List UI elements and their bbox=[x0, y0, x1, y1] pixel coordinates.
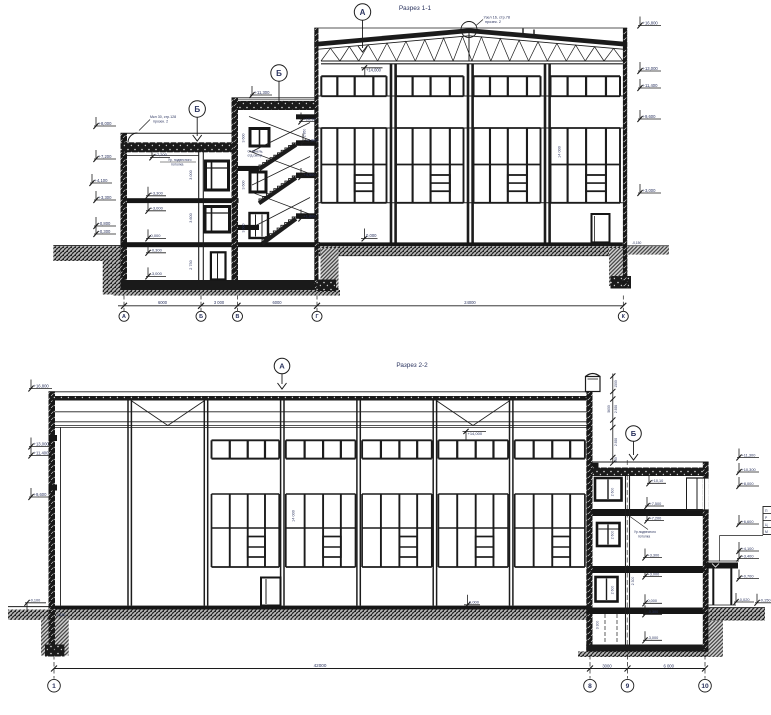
svg-text:+10,10: +10,10 bbox=[304, 116, 317, 121]
svg-text:0,000: 0,000 bbox=[648, 599, 658, 603]
svg-text:9: 9 bbox=[626, 683, 630, 690]
svg-text:+0,700: +0,700 bbox=[742, 573, 755, 578]
svg-text:0,000: 0,000 bbox=[151, 233, 162, 238]
svg-text:24000: 24000 bbox=[464, 300, 476, 305]
svg-text:потолка: потолка bbox=[171, 162, 184, 166]
svg-text:6 000: 6 000 bbox=[663, 663, 674, 668]
svg-text:6000: 6000 bbox=[158, 300, 168, 305]
svg-text:+8,000: +8,000 bbox=[742, 481, 755, 486]
svg-text:14 000: 14 000 bbox=[292, 510, 296, 522]
svg-text:8: 8 bbox=[588, 683, 592, 690]
svg-text:2 600: 2 600 bbox=[611, 586, 615, 595]
svg-text:В: В bbox=[236, 314, 240, 320]
svg-text:-0,300: -0,300 bbox=[648, 610, 659, 614]
svg-text:+4,100: +4,100 bbox=[95, 178, 109, 183]
svg-text:Б: Б bbox=[199, 314, 203, 320]
svg-text:А: А bbox=[122, 314, 126, 320]
svg-text:2 750: 2 750 bbox=[189, 260, 193, 270]
svg-text:-0,800: -0,800 bbox=[99, 221, 112, 226]
svg-text:2 300: 2 300 bbox=[631, 577, 635, 586]
svg-text:+9,600: +9,600 bbox=[643, 114, 657, 119]
svg-text:+16,800: +16,800 bbox=[34, 383, 50, 388]
svg-text:отд.смотр.: отд.смотр. bbox=[248, 154, 264, 158]
svg-text:+3,000: +3,000 bbox=[648, 572, 660, 576]
svg-text:+7,200: +7,200 bbox=[650, 516, 662, 520]
svg-text:-0,300: -0,300 bbox=[99, 229, 112, 234]
svg-text:А: А bbox=[360, 8, 366, 17]
svg-text:потолка: потолка bbox=[638, 534, 650, 538]
svg-text:42000: 42000 bbox=[314, 663, 327, 668]
svg-text:+6,600: +6,600 bbox=[742, 519, 755, 524]
svg-text:3 600: 3 600 bbox=[189, 213, 193, 223]
svg-text:-0,300: -0,300 bbox=[151, 248, 163, 253]
svg-text:+11,400: +11,400 bbox=[34, 450, 50, 455]
svg-text:-0,150: -0,150 bbox=[632, 241, 642, 245]
svg-text:Г: Г bbox=[315, 314, 318, 320]
svg-text:-0,150: -0,150 bbox=[760, 598, 771, 603]
svg-text:+10,300: +10,300 bbox=[742, 467, 757, 472]
svg-text:1500: 1500 bbox=[614, 380, 618, 388]
svg-text:-0,020: -0,020 bbox=[739, 597, 751, 602]
svg-text:+3,300: +3,300 bbox=[151, 191, 164, 196]
svg-text:3 600: 3 600 bbox=[242, 181, 246, 190]
svg-text:3 300: 3 300 bbox=[596, 621, 600, 630]
svg-text:+13,000: +13,000 bbox=[34, 441, 50, 446]
svg-text:+3,300: +3,300 bbox=[648, 553, 660, 557]
svg-text:+3,000: +3,000 bbox=[151, 206, 164, 211]
svg-text:Ур. подвесного: Ур. подвесного bbox=[168, 158, 192, 162]
svg-text:6000: 6000 bbox=[272, 300, 282, 305]
svg-text:Мкл 30, стр.128: Мкл 30, стр.128 bbox=[150, 115, 176, 119]
svg-text:2 850: 2 850 bbox=[614, 438, 618, 446]
svg-text:5600: 5600 bbox=[607, 405, 611, 413]
svg-text:+1,800: +1,800 bbox=[304, 213, 317, 218]
svg-text:+11,400: +11,400 bbox=[643, 83, 659, 88]
svg-text:+16,800: +16,800 bbox=[643, 20, 659, 25]
svg-text:Узел 16, стр.78: Узел 16, стр.78 bbox=[484, 16, 511, 20]
svg-text:2 850: 2 850 bbox=[303, 129, 307, 138]
svg-text:+7,200: +7,200 bbox=[155, 152, 168, 157]
svg-text:+4,900: +4,900 bbox=[304, 172, 317, 177]
svg-text:3 000: 3 000 bbox=[189, 170, 193, 180]
svg-text:2 850: 2 850 bbox=[614, 405, 618, 413]
svg-text:-0,100: -0,100 bbox=[30, 599, 41, 603]
svg-text:-0,150: -0,150 bbox=[56, 613, 66, 617]
svg-text:Б: Б bbox=[194, 105, 200, 114]
svg-text:1: 1 bbox=[52, 683, 56, 690]
svg-text:0,000: 0,000 bbox=[366, 233, 377, 238]
svg-text:+7,500: +7,500 bbox=[650, 502, 662, 506]
svg-text:+10,10: +10,10 bbox=[652, 479, 664, 483]
svg-text:+11,300: +11,300 bbox=[742, 452, 757, 457]
svg-text:+14,000: +14,000 bbox=[366, 68, 382, 73]
svg-text:3 000: 3 000 bbox=[214, 300, 225, 305]
svg-text:+7,800: +7,800 bbox=[306, 137, 319, 142]
svg-text:+3,400: +3,400 bbox=[742, 553, 755, 558]
svg-text:+3,300: +3,300 bbox=[99, 195, 113, 200]
svg-text:прозек. 2: прозек. 2 bbox=[485, 20, 501, 24]
svg-text:14 000: 14 000 bbox=[558, 146, 562, 158]
svg-text:Б: Б bbox=[631, 429, 637, 438]
svg-text:10: 10 bbox=[701, 683, 709, 690]
svg-text:А: А bbox=[279, 362, 285, 371]
svg-text:3 600: 3 600 bbox=[242, 134, 246, 143]
svg-text:Б: Б bbox=[276, 69, 282, 78]
svg-text:прозек. 2: прозек. 2 bbox=[153, 120, 168, 124]
svg-text:2 600: 2 600 bbox=[611, 531, 615, 540]
svg-text:М: М bbox=[765, 530, 768, 534]
svg-text:+9,600: +9,600 bbox=[34, 492, 48, 497]
svg-text:+7,200: +7,200 bbox=[99, 154, 113, 159]
svg-text:+8,000: +8,000 bbox=[99, 121, 113, 126]
svg-text:+4,100: +4,100 bbox=[742, 546, 755, 551]
svg-text:3 600: 3 600 bbox=[242, 224, 246, 233]
svg-text:Разрез 2-2: Разрез 2-2 bbox=[396, 362, 428, 369]
svg-text:-3,000: -3,000 bbox=[151, 271, 163, 276]
svg-text:+11,300: +11,300 bbox=[255, 90, 271, 95]
svg-text:+14,000: +14,000 bbox=[468, 431, 483, 436]
svg-text:2 600: 2 600 bbox=[611, 488, 615, 497]
svg-text:+3,000: +3,000 bbox=[643, 188, 657, 193]
svg-text:Разрез 1-1: Разрез 1-1 bbox=[399, 5, 432, 12]
svg-text:0,000: 0,000 bbox=[469, 599, 480, 604]
svg-text:+13,000: +13,000 bbox=[643, 66, 659, 71]
svg-text:3000: 3000 bbox=[602, 663, 612, 668]
svg-text:-3,000: -3,000 bbox=[648, 636, 659, 640]
